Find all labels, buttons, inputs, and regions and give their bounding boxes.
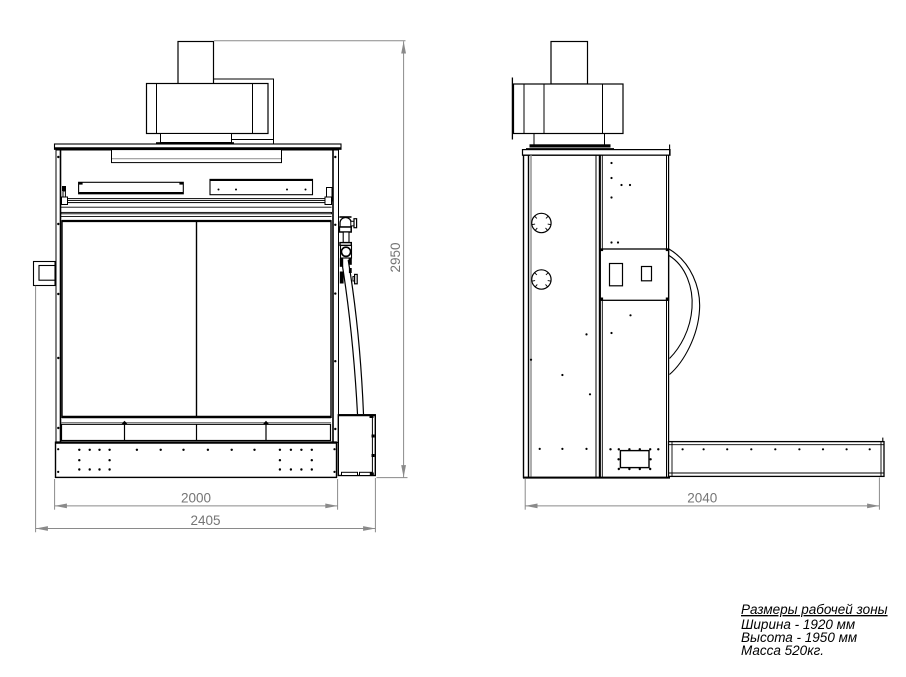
svg-text:2000: 2000: [181, 491, 211, 506]
svg-text:Размеры рабочей зоны: Размеры рабочей зоны: [741, 602, 888, 617]
svg-text:2405: 2405: [190, 513, 220, 528]
svg-text:2950: 2950: [388, 242, 403, 272]
svg-text:2040: 2040: [687, 491, 717, 506]
svg-text:Масса 520кг.: Масса 520кг.: [741, 643, 824, 658]
